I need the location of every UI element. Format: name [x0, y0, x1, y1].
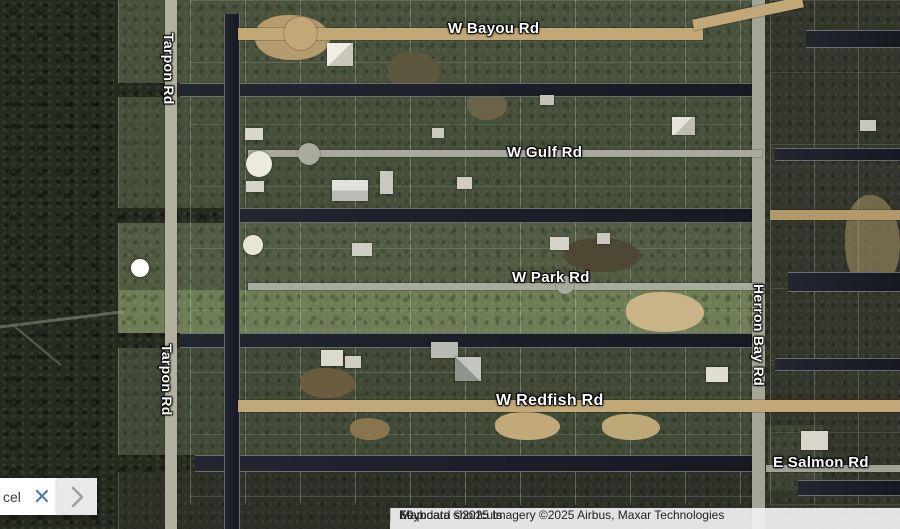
building — [345, 356, 361, 368]
building — [801, 431, 828, 450]
sand-patch — [602, 414, 660, 440]
building — [550, 237, 569, 250]
place-card-text: cel — [0, 489, 21, 505]
canal-segment — [224, 14, 240, 529]
canal-segment — [195, 455, 762, 472]
storage-tank — [243, 235, 263, 255]
map-data-attribution: Map data ©2025 Imagery ©2025 Airbus, Max… — [390, 508, 733, 522]
canal-segment — [775, 358, 900, 371]
building — [332, 180, 368, 201]
road-label-tarpon-lower: Tarpon Rd — [159, 344, 175, 416]
building — [352, 243, 372, 256]
sand-patch — [350, 418, 390, 440]
road-label-e-salmon: E Salmon Rd — [773, 454, 869, 471]
map-canvas[interactable]: W Bayou Rd W Gulf Rd W Park Rd W Redfish… — [0, 0, 900, 529]
building — [380, 171, 393, 194]
parcel-grid — [770, 0, 900, 505]
road-label-w-redfish: W Redfish Rd — [496, 392, 604, 410]
building — [597, 233, 610, 244]
building — [706, 367, 728, 382]
building — [321, 350, 343, 366]
road-segment — [770, 210, 900, 220]
building — [246, 181, 264, 192]
canal-segment — [775, 148, 900, 161]
close-icon — [35, 489, 49, 503]
canal-segment — [806, 30, 900, 48]
building — [455, 357, 481, 381]
storage-tank — [246, 151, 272, 177]
parcel-grid — [190, 0, 762, 505]
canal-segment — [180, 83, 762, 97]
sand-patch — [626, 292, 704, 332]
building — [860, 120, 876, 131]
building — [327, 43, 353, 66]
canal-segment — [224, 208, 762, 223]
road-herron-bay — [752, 0, 765, 529]
building — [457, 177, 472, 189]
road-label-w-park: W Park Rd — [512, 269, 590, 286]
map-marker-dot[interactable] — [131, 259, 149, 277]
road-w-park — [248, 283, 762, 290]
building — [432, 128, 444, 138]
sand-patch — [495, 412, 560, 440]
road-label-w-gulf: W Gulf Rd — [507, 144, 582, 161]
road-culdesac — [298, 143, 320, 165]
road-label-tarpon-upper: Tarpon Rd — [161, 33, 177, 105]
road-culdesac — [284, 17, 317, 50]
chevron-right-icon — [66, 484, 88, 510]
building — [540, 95, 554, 105]
close-button[interactable] — [28, 482, 56, 510]
road-w-gulf — [248, 150, 762, 157]
building — [672, 117, 695, 135]
scale-control[interactable]: 50 m — [390, 508, 436, 522]
road-label-herron-bay: Herron Bay Rd — [751, 284, 767, 386]
attribution-bar: Keyboard shortcuts Map data ©2025 Imager… — [390, 508, 900, 529]
canal-segment — [798, 480, 900, 496]
expand-button[interactable] — [57, 478, 97, 515]
building — [431, 342, 458, 358]
road-label-w-bayou: W Bayou Rd — [448, 20, 539, 37]
building — [245, 128, 263, 140]
canal-segment — [788, 272, 900, 292]
canal-segment — [180, 333, 762, 348]
dirt-patch — [300, 368, 355, 398]
